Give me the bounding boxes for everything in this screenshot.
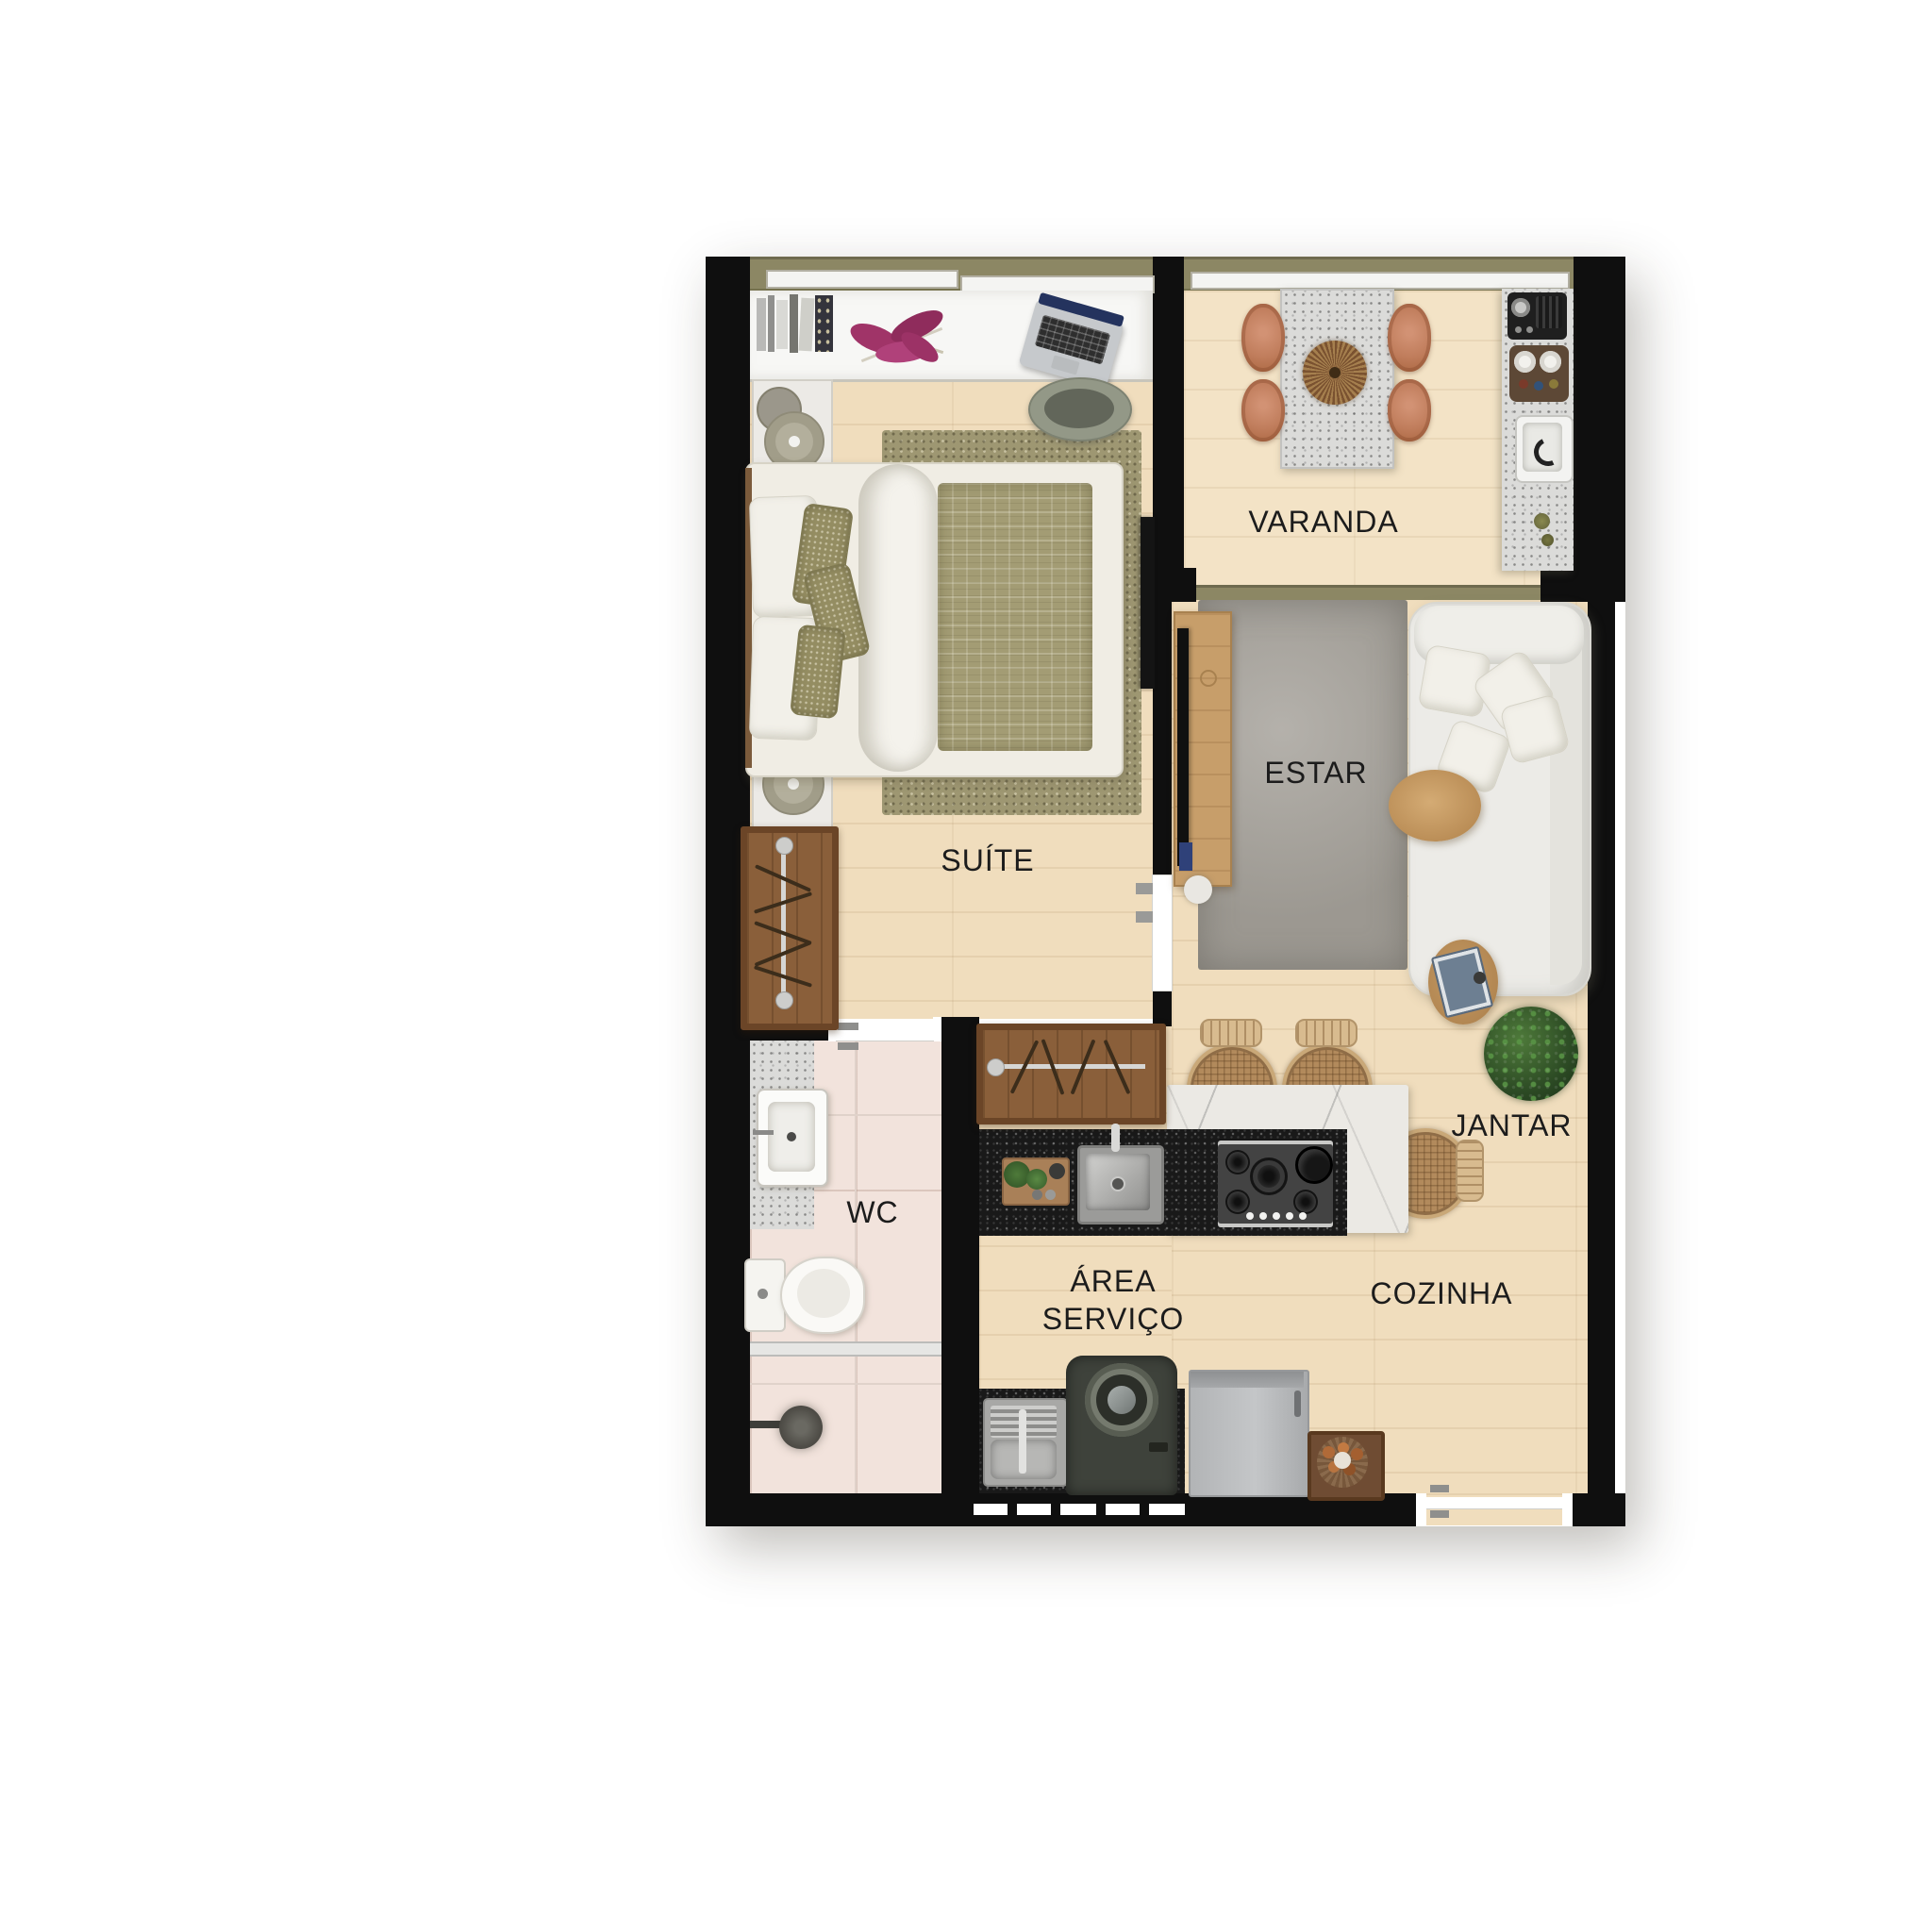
wall-wc-right [941,1017,979,1493]
burner [1225,1150,1250,1174]
wall-right-lower [1588,602,1615,1495]
bed-blanket [938,483,1092,751]
grill-burner [1511,298,1530,317]
lamp-center-dot [788,778,799,790]
entry-door-handle [1430,1485,1449,1492]
herb-plant [1026,1169,1047,1190]
varanda-chair [1241,304,1285,372]
toilet-seat [797,1269,850,1318]
counter-plant [1541,534,1554,546]
stool-cushion-2 [1295,1019,1357,1047]
shower-head [779,1406,823,1449]
wall-bottom-right [1569,1493,1625,1526]
suite-door [1153,875,1172,991]
book [776,300,788,349]
grill-knob [1526,326,1533,333]
wardrobe-knob [775,837,793,855]
wc-sink [757,1089,828,1187]
bowl [1514,351,1536,373]
entry-door-handle [1430,1510,1449,1518]
label-area-line1: ÁREA [1000,1262,1226,1300]
burner [1225,1190,1250,1214]
burner-large [1250,1158,1288,1195]
grill [1507,292,1567,340]
varanda-chair [1241,379,1285,441]
stool-cushion-1 [1200,1019,1262,1047]
knob [1286,1212,1293,1220]
label-area-servico: ÁREA SERVIÇO [1000,1262,1226,1338]
suite-door-hinge [1136,883,1153,894]
varanda-window-glass [1191,272,1570,290]
fridge-handle [1294,1391,1301,1417]
knob [1246,1212,1254,1220]
suite-door-hinge [1136,911,1153,923]
wall-below-suite-door [1153,991,1172,1026]
flower-bouquet [849,300,955,387]
desk-books [755,291,840,357]
wc-door-handle [838,1023,858,1030]
knob [1259,1212,1267,1220]
book [799,298,815,352]
label-suite: SUÍTE [874,842,1101,878]
fruit-basket [1307,1431,1385,1501]
bottom-wall-dash [1017,1504,1051,1515]
laundry-tank [983,1398,1068,1487]
bowl [1540,351,1561,373]
condiment [1519,379,1528,389]
suite-wardrobe-1 [741,826,839,1030]
kitchen-sink [1077,1145,1164,1224]
counter-tray [1509,345,1569,402]
washing-machine [1066,1356,1177,1495]
stool-cushion-3 [1456,1140,1484,1202]
suite-window-band [750,257,1153,291]
suite-tv [1141,517,1155,689]
washer-panel [1149,1442,1168,1452]
fruit [1323,1446,1335,1458]
wc-grout-h2 [750,1383,941,1385]
fruit [1351,1448,1363,1460]
knob [1299,1212,1307,1220]
cutting-board [1002,1158,1070,1206]
kitchen-sink-drain [1110,1176,1125,1191]
varanda-sink [1515,415,1574,483]
label-area-line2: SERVIÇO [1000,1300,1226,1338]
small-bowl [1049,1163,1065,1179]
side-table [1428,940,1498,1024]
sliding-door-track [1196,585,1541,600]
label-cozinha: COZINHA [1328,1275,1555,1311]
label-estar: ESTAR [1217,755,1415,791]
table-centerpiece [1303,341,1367,405]
bed-pillow-green [790,625,846,720]
bed-duvet-roll [858,464,938,772]
basket-cloth [1334,1452,1351,1469]
entry-door-jamb [1416,1493,1426,1526]
counter-plant [1534,513,1550,529]
desk-chair [1028,377,1132,441]
condiment [1549,379,1558,389]
toilet-bowl [780,1257,865,1334]
label-wc: WC [816,1194,929,1230]
wall-step-right [1541,571,1615,602]
jantar-plant [1484,1007,1578,1101]
grill-grate [1536,296,1562,328]
label-varanda: VARANDA [1206,504,1441,540]
wardrobe-knob [775,991,793,1009]
console-decor [1184,875,1212,904]
console-knot [1200,670,1217,687]
floor-plan-canvas: VARANDA SUÍTE ESTAR WC JANTAR ÁREA SERVI… [0,0,1932,1932]
knob [1273,1212,1280,1220]
wall-suite-estar [1153,602,1172,877]
refrigerator [1189,1370,1309,1497]
kettle [1295,1146,1333,1184]
entry-door-jamb [1562,1493,1573,1526]
wc-sink-faucet [753,1130,774,1135]
bottom-wall-dash [1106,1504,1140,1515]
lamp-center-dot [789,436,800,447]
wardrobe-knob [987,1058,1005,1076]
bottom-wall-dash [1149,1504,1185,1515]
book-on-table [1431,946,1493,1019]
suite-wardrobe-2 [976,1024,1166,1124]
shower-partition [750,1341,941,1357]
varanda-window-band [1184,257,1574,291]
wall-right-upper [1574,257,1625,602]
fridge-top-band [1191,1372,1304,1388]
washer-glass [1108,1386,1136,1414]
wc-door-handle [838,1042,858,1050]
small-jar [1032,1190,1042,1200]
book [790,294,798,353]
bottom-wall-dash [974,1504,1008,1515]
centerpiece-center [1329,367,1341,378]
wall-divider-suite-varanda [1153,257,1184,602]
desk-chair-seat [1044,389,1114,428]
wc-door-jamb [933,1017,941,1041]
suite-window-glass-1 [766,270,958,289]
book-patterned [815,295,833,352]
toilet-flush-button [758,1289,768,1299]
varanda-chair [1388,304,1431,372]
book [768,295,774,352]
book [757,298,766,351]
condiment [1534,381,1543,391]
grill-knob [1515,326,1522,333]
estar-tv [1177,628,1189,866]
kitchen-faucet [1111,1124,1120,1152]
varanda-chair [1388,379,1431,441]
burner [1293,1190,1318,1214]
sofa-back-band [1550,609,1582,985]
tank-faucet [1019,1409,1026,1474]
entry-door-leaf [1426,1497,1562,1508]
small-jar [1045,1190,1056,1200]
cooktop [1218,1141,1333,1227]
console-device [1179,842,1192,871]
wc-sink-drain [787,1132,796,1141]
label-jantar: JANTAR [1410,1108,1613,1143]
cup [1474,972,1486,984]
bottom-wall-dash [1060,1504,1096,1515]
wardrobe-rod [996,1064,1145,1069]
